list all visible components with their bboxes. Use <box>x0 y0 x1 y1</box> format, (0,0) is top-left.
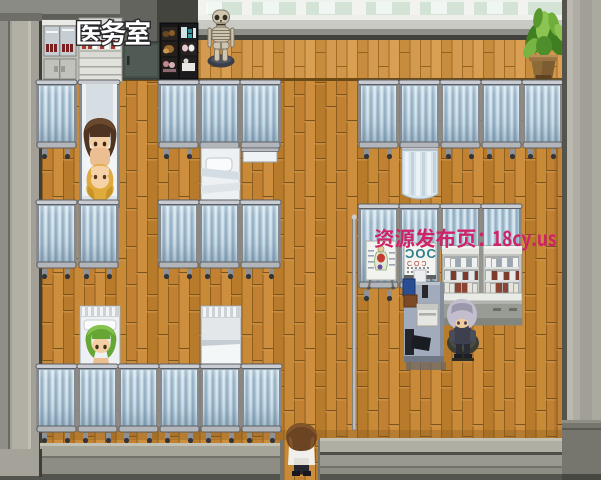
svg-text:C O Ɔ: C O Ɔ <box>407 261 426 268</box>
svg-text:ƆOC: ƆOC <box>405 246 437 261</box>
